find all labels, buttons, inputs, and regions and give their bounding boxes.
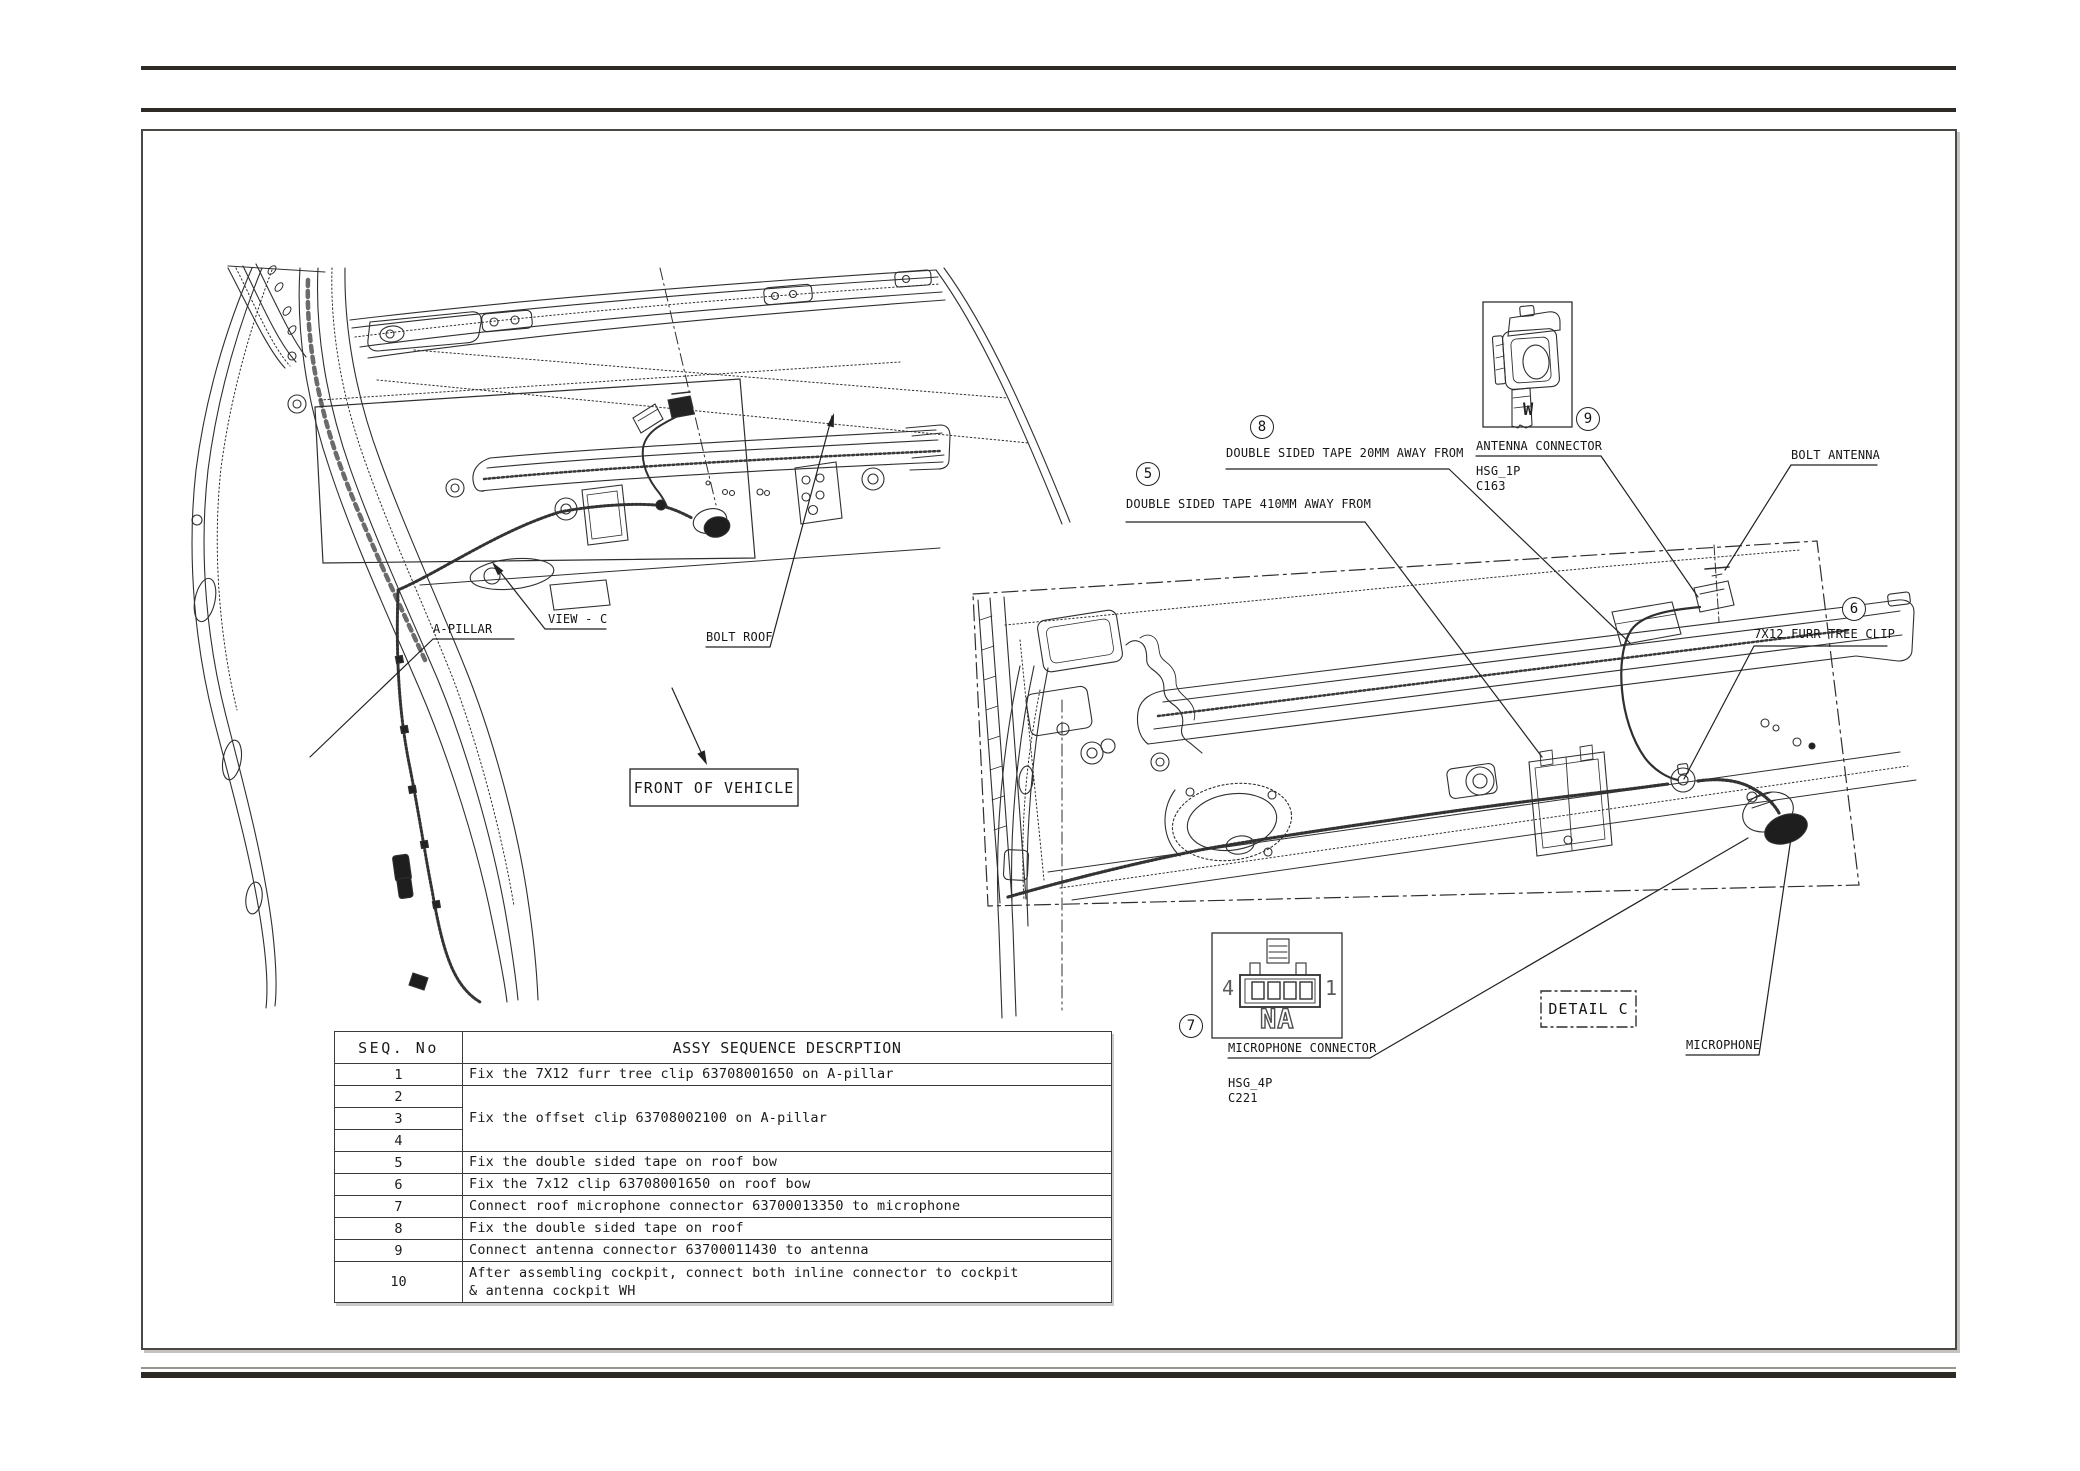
speaker-grommet-icon (1165, 775, 1297, 869)
desc-cell: Connect antenna connector 63700011430 to… (463, 1240, 1112, 1262)
description-column-header: ASSY SEQUENCE DESCRPTION (463, 1032, 1112, 1064)
balloon-7: 7 (1179, 1014, 1203, 1038)
desc-cell: Fix the 7x12 clip 63708001650 on roof bo… (463, 1174, 1112, 1196)
desc-cell-merged: Fix the offset clip 63708002100 on A-pil… (463, 1086, 1112, 1152)
antenna-connector-icon (668, 396, 694, 418)
microphone-connector-label: MICROPHONE CONNECTOR (1228, 1041, 1377, 1055)
antenna-connector-label: ANTENNA CONNECTOR (1476, 439, 1602, 453)
balloon-5-number: 5 (1144, 466, 1152, 482)
desc-cell: Connect roof microphone connector 637000… (463, 1196, 1112, 1218)
bolt-antenna-icon (1694, 545, 1734, 622)
callout-leaders (310, 416, 1887, 1058)
seq-cell: 6 (335, 1174, 463, 1196)
seq-cell: 3 (335, 1108, 463, 1130)
roof-harness (398, 504, 692, 590)
table-row: 8 Fix the double sided tape on roof (335, 1218, 1112, 1240)
furr-tree-clip-icon (1671, 763, 1695, 792)
tape-410-label: DOUBLE SIDED TAPE 410MM AWAY FROM (1126, 497, 1371, 511)
microphone-connector-pictogram (1240, 939, 1320, 1007)
left-view-roof-and-pillar-drawing (191, 264, 1070, 1018)
front-of-vehicle-label: FRONT OF VEHICLE (630, 769, 798, 806)
balloon-6: 6 (1842, 597, 1866, 621)
balloon-8: 8 (1250, 415, 1274, 439)
balloon-5: 5 (1136, 462, 1160, 486)
table-row: 10 After assembling cockpit, connect bot… (335, 1262, 1112, 1303)
double-sided-tape-20-icon (1612, 602, 1681, 645)
antenna-connector-code: W (1523, 400, 1533, 420)
mic-connector-pin-1: 1 (1325, 976, 1337, 1000)
seq-cell: 4 (335, 1130, 463, 1152)
microphone-icon (702, 514, 732, 540)
furr-tree-clip-label: 7X12 FURR TREE CLIP (1754, 627, 1895, 641)
assembly-sequence-table: SEQ. No ASSY SEQUENCE DESCRPTION 1 Fix t… (334, 1031, 1112, 1303)
a-pillar-label: A-PILLAR (433, 622, 492, 636)
table-row: 5 Fix the double sided tape on roof bow (335, 1152, 1112, 1174)
desc-cell: After assembling cockpit, connect both i… (463, 1262, 1112, 1303)
table-row: 2 Fix the offset clip 63708002100 on A-p… (335, 1086, 1112, 1108)
seq-cell: 7 (335, 1196, 463, 1218)
antenna-circuit-label: C163 (1476, 479, 1506, 493)
mic-connector-code: NA (1260, 1004, 1295, 1035)
detail-c-label: DETAIL C (1541, 991, 1636, 1027)
desc-cell: Fix the 7X12 furr tree clip 63708001650 … (463, 1064, 1112, 1086)
microphone-label: MICROPHONE (1686, 1038, 1760, 1052)
mic-circuit-label: C221 (1228, 1091, 1258, 1105)
view-c-label: VIEW - C (548, 612, 607, 626)
microphone-detail-icon (1737, 785, 1811, 849)
seq-cell: 8 (335, 1218, 463, 1240)
bolt-antenna-label: BOLT ANTENNA (1791, 448, 1880, 462)
desc-cell: Fix the double sided tape on roof bow (463, 1152, 1112, 1174)
table-header-row: SEQ. No ASSY SEQUENCE DESCRPTION (335, 1032, 1112, 1064)
desc-cell: Fix the double sided tape on roof (463, 1218, 1112, 1240)
balloon-8-number: 8 (1258, 419, 1266, 435)
balloon-6-number: 6 (1850, 601, 1858, 617)
balloon-9-number: 9 (1584, 411, 1592, 427)
seq-cell: 2 (335, 1086, 463, 1108)
mic-connector-pin-4: 4 (1222, 976, 1234, 1000)
table-row: 6 Fix the 7x12 clip 63708001650 on roof … (335, 1174, 1112, 1196)
drawing-sheet: A-PILLAR VIEW - C BOLT ROOF FRONT OF VEH… (0, 0, 2080, 1471)
table-row: 7 Connect roof microphone connector 6370… (335, 1196, 1112, 1218)
detail-c-view-drawing (973, 541, 1916, 906)
seq-cell: 5 (335, 1152, 463, 1174)
table-row: 1 Fix the 7X12 furr tree clip 6370800165… (335, 1064, 1112, 1086)
tape-20-label: DOUBLE SIDED TAPE 20MM AWAY FROM (1226, 446, 1464, 460)
seq-cell: 10 (335, 1262, 463, 1303)
antenna-wire (643, 417, 676, 507)
seq-cell: 1 (335, 1064, 463, 1086)
seq-column-header: SEQ. No (335, 1032, 463, 1064)
seq-cell: 9 (335, 1240, 463, 1262)
table-row: 9 Connect antenna connector 63700011430 … (335, 1240, 1112, 1262)
bolt-roof-label: BOLT ROOF (706, 630, 773, 644)
antenna-housing-label: HSG_1P (1476, 464, 1521, 478)
balloon-7-number: 7 (1187, 1018, 1195, 1034)
balloon-9: 9 (1576, 407, 1600, 431)
a-pillar-harness (397, 592, 480, 1002)
mic-housing-label: HSG_4P (1228, 1076, 1273, 1090)
